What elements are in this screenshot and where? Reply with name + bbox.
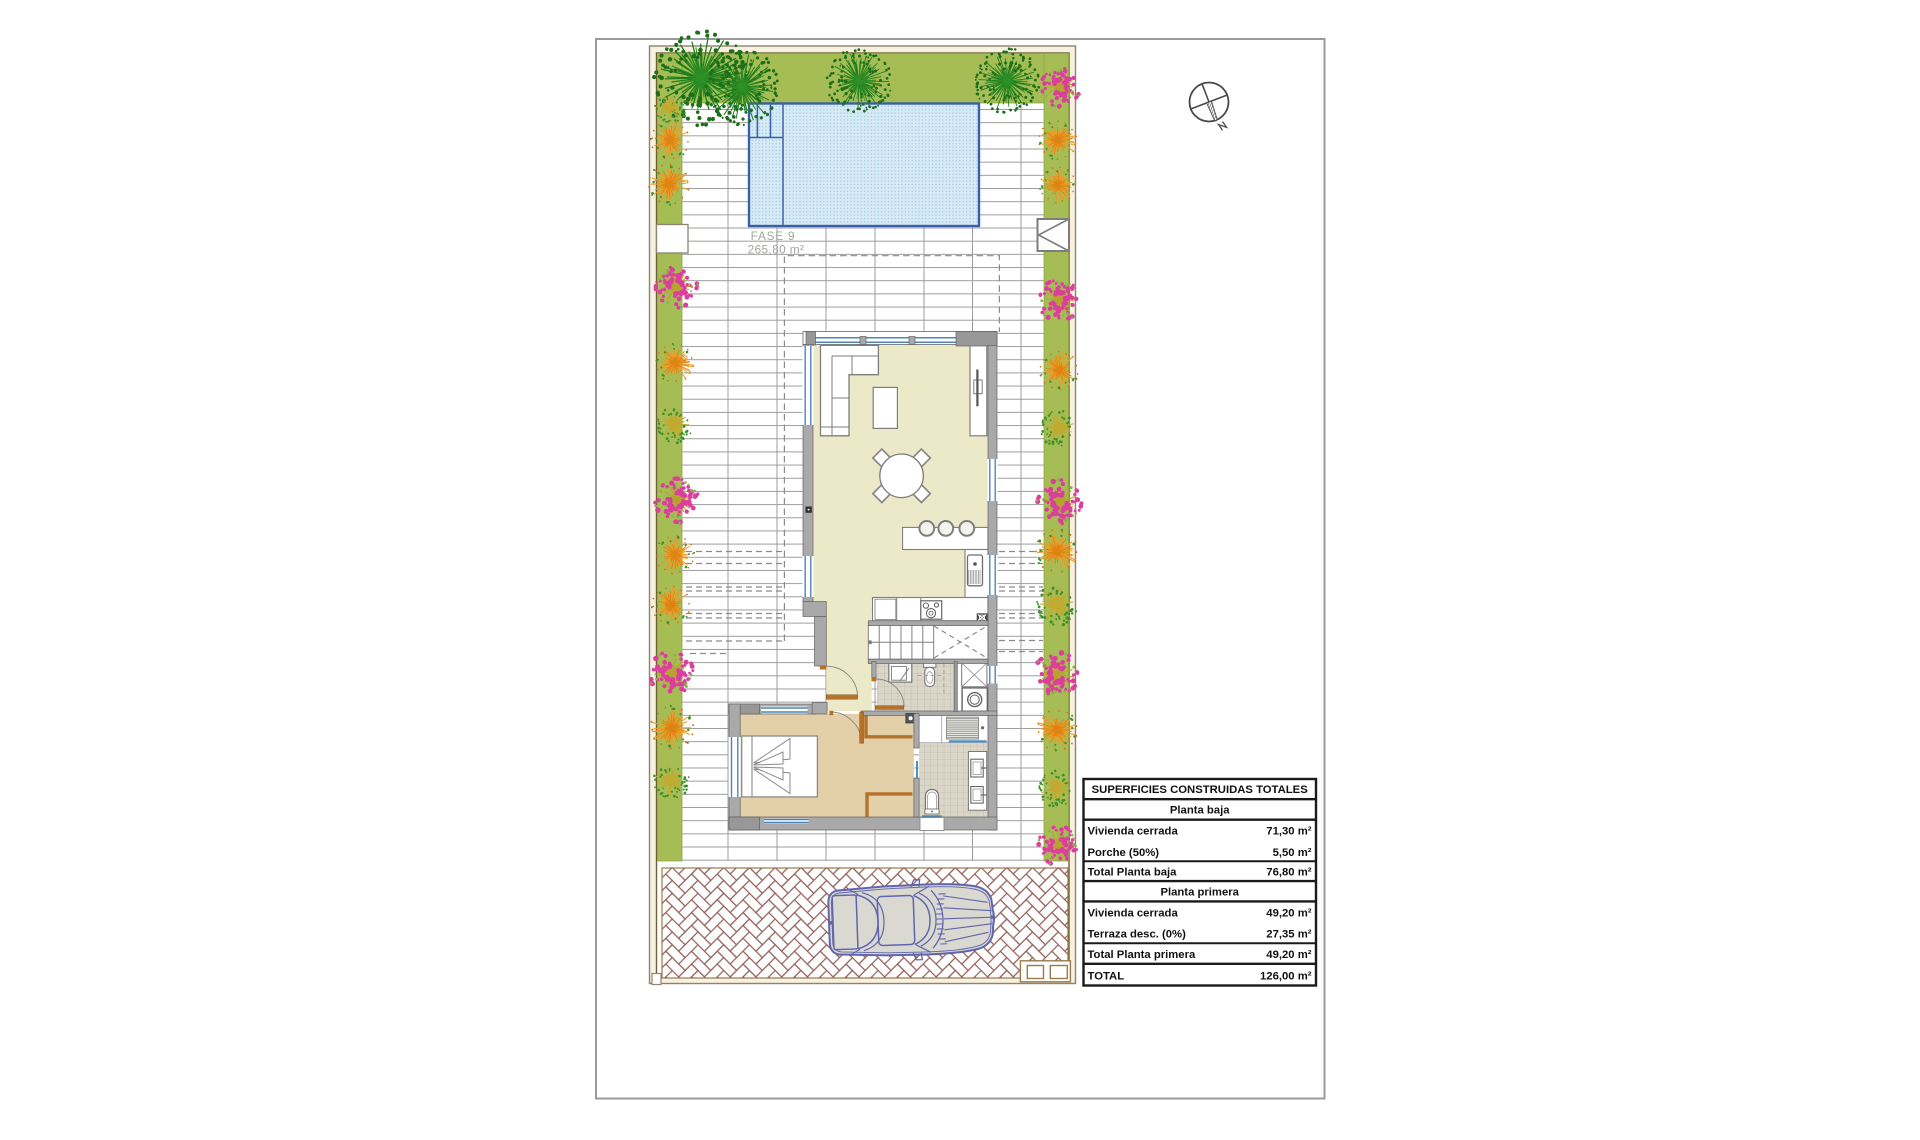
svg-text:Planta baja: Planta baja (1170, 805, 1230, 817)
svg-text:5,50 m²: 5,50 m² (1273, 847, 1312, 859)
svg-text:Planta primera: Planta primera (1160, 887, 1239, 899)
svg-text:Terraza desc. (0%): Terraza desc. (0%) (1088, 929, 1187, 941)
svg-text:71,30 m²: 71,30 m² (1266, 826, 1311, 838)
svg-text:49,20 m²: 49,20 m² (1266, 908, 1311, 920)
svg-text:SUPERFICIES CONSTRUIDAS TOTALE: SUPERFICIES CONSTRUIDAS TOTALES (1092, 784, 1309, 796)
svg-text:76,80 m²: 76,80 m² (1266, 867, 1311, 879)
svg-text:Total Planta baja: Total Planta baja (1088, 867, 1178, 879)
svg-text:Total Planta primera: Total Planta primera (1088, 949, 1196, 961)
svg-text:Porche (50%): Porche (50%) (1088, 847, 1160, 859)
svg-text:TOTAL: TOTAL (1088, 970, 1125, 982)
svg-text:126,00 m²: 126,00 m² (1260, 970, 1312, 982)
svg-text:265,80 m²: 265,80 m² (748, 243, 805, 257)
svg-text:27,35 m²: 27,35 m² (1266, 929, 1311, 941)
svg-text:Vivienda cerrada: Vivienda cerrada (1088, 908, 1179, 920)
svg-text:FASE 9: FASE 9 (751, 229, 796, 243)
svg-text:49,20 m²: 49,20 m² (1266, 949, 1311, 961)
svg-text:Vivienda cerrada: Vivienda cerrada (1088, 826, 1179, 838)
